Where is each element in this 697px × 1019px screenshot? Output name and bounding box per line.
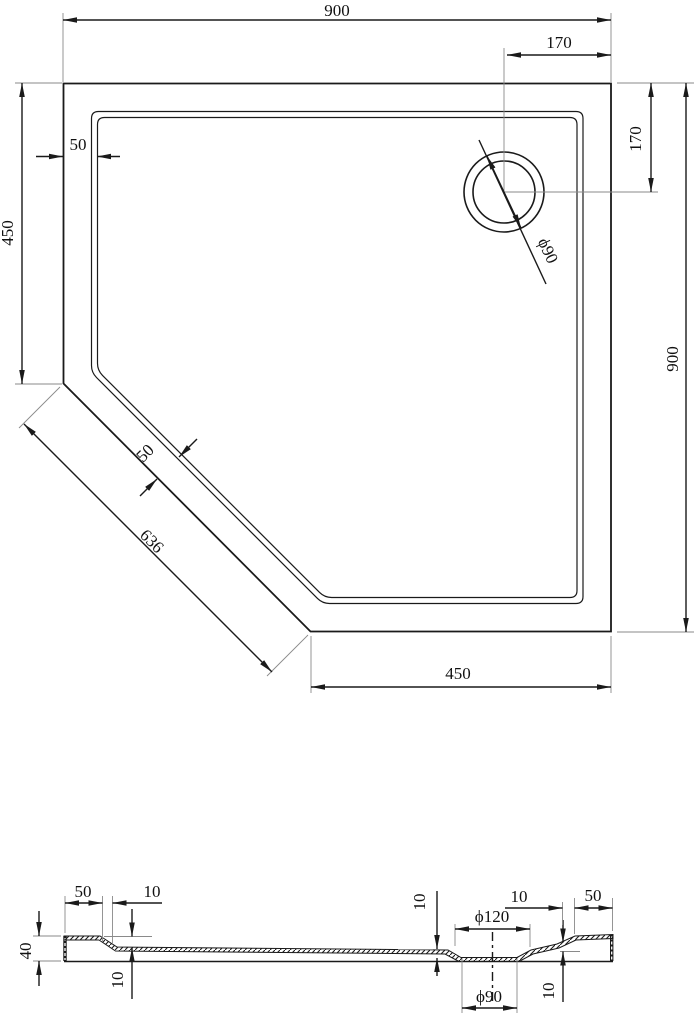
drawing-sheet: 900 170 170 900 450 <box>0 0 697 1019</box>
dim-plan-width-top: 900 <box>63 1 611 82</box>
dim-label-section-recess-depth: 10 <box>410 894 429 911</box>
dim-bottom-edge: 450 <box>311 636 611 693</box>
dim-label-section-drain-diameter: ϕ90 <box>476 987 502 1006</box>
tray-outer-outline <box>64 84 612 632</box>
dim-section-slope-right: 10 <box>505 887 563 925</box>
dim-label-section-height: 40 <box>16 943 35 960</box>
dim-label-rim-width-top: 50 <box>70 135 87 154</box>
dim-label-height-right: 900 <box>663 346 682 372</box>
dim-section-rim-left: 50 <box>65 882 113 944</box>
tray-inner-rim-outline <box>92 112 584 604</box>
section-sheet-profile <box>64 935 613 962</box>
tray-floor-outline <box>98 118 578 598</box>
section-view: 50 10 40 10 10 <box>16 882 613 1013</box>
dim-label-rim-width-diagonal: 50 <box>132 440 157 465</box>
dim-label-section-rim-left: 50 <box>75 882 92 901</box>
dim-section-recess-depth: 10 <box>398 891 437 976</box>
dim-section-slope-left: 10 <box>113 882 163 903</box>
plan-view: 900 170 170 900 450 <box>0 1 694 693</box>
dim-label-section-recess-diameter: ϕ120 <box>475 907 509 926</box>
dim-rim-width-top: 50 <box>36 135 120 157</box>
dim-drain-offset-y: 170 <box>617 83 694 192</box>
dim-section-height: 40 <box>16 911 61 986</box>
dim-label-width-top: 900 <box>324 1 350 20</box>
dim-label-section-slope-left: 10 <box>144 882 161 901</box>
dim-diagonal-edge: 636 <box>19 387 308 676</box>
dim-label-section-rim-right: 50 <box>585 886 602 905</box>
dim-section-drain-diameter: ϕ90 <box>462 959 517 1013</box>
dim-left-edge: 450 <box>0 83 62 384</box>
dim-drain-diameter: ϕ90 <box>479 140 562 284</box>
dim-label-drain-offset-y: 170 <box>626 126 645 152</box>
dim-label-bottom-edge: 450 <box>445 664 471 683</box>
dim-plan-height-right: 900 <box>617 83 694 632</box>
dim-label-diagonal-edge: 636 <box>136 525 167 556</box>
dim-label-section-rim-depth-left: 10 <box>108 972 127 989</box>
dim-section-rim-depth-left: 10 <box>104 909 152 999</box>
dim-label-section-slope-right: 10 <box>511 887 528 906</box>
dim-label-section-rise-right: 10 <box>539 983 558 1000</box>
dim-label-left-edge: 450 <box>0 220 17 246</box>
dim-label-drain-offset-x: 170 <box>546 33 572 52</box>
dim-section-rim-right: 50 <box>575 886 613 934</box>
dim-drain-offset-x: 170 <box>507 33 611 55</box>
dim-label-drain-diameter: ϕ90 <box>534 235 562 267</box>
technical-drawing: 900 170 170 900 450 <box>0 0 697 1019</box>
